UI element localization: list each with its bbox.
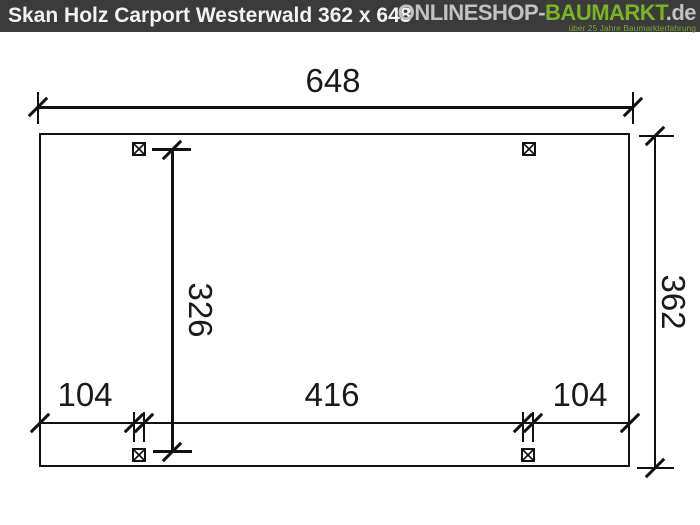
shop-logo: ONLINESHOP-BAUMARKT.de über 25 Jahre Bau… xyxy=(398,3,696,33)
dim-648-label: 648 xyxy=(305,62,360,100)
logo-part-baumarkt: BAUMARKT xyxy=(545,0,666,25)
logo-tagline: über 25 Jahre Baumarkterfahrung xyxy=(398,24,696,33)
dim-line-bottom xyxy=(40,422,631,424)
dim-416-label: 416 xyxy=(304,376,359,414)
page-title: Skan Holz Carport Westerwald 362 x 648 xyxy=(8,0,411,32)
dim-362-label: 362 xyxy=(654,274,692,329)
shop-logo-wordmark: ONLINESHOP-BAUMARKT.de xyxy=(398,3,696,23)
dim-104-right-label: 104 xyxy=(552,376,607,414)
dim-line-326 xyxy=(171,149,174,452)
logo-part-onlineshop: ONLINESHOP- xyxy=(398,0,545,25)
logo-part-de: .de xyxy=(666,0,696,25)
post-marker-top-right xyxy=(522,142,536,156)
post-edge-line xyxy=(522,412,524,442)
header-bar: Skan Holz Carport Westerwald 362 x 648 O… xyxy=(0,0,700,32)
dim-line-648 xyxy=(37,106,634,109)
post-edge-line xyxy=(143,412,145,442)
post-edge-line xyxy=(532,412,534,442)
dim-326-label: 326 xyxy=(181,282,219,337)
post-edge-line xyxy=(133,412,135,442)
dim-104-left-label: 104 xyxy=(57,376,112,414)
carport-outline xyxy=(39,133,630,467)
post-marker-bottom-left xyxy=(132,448,146,462)
post-marker-top-left xyxy=(132,142,146,156)
post-marker-bottom-right xyxy=(521,448,535,462)
